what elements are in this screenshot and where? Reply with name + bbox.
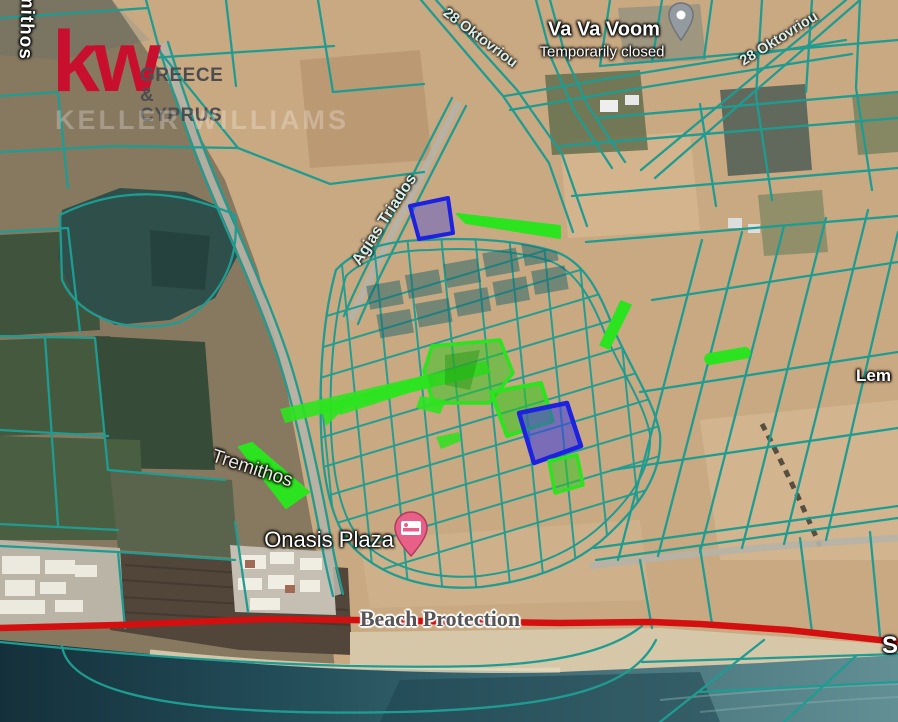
highlight-parcel-blue-top[interactable] xyxy=(410,198,453,239)
street-label-coast-partial: S xyxy=(882,632,898,660)
street-label-tremithos-edge: mithos xyxy=(14,0,38,60)
overlay-label-beach-protection: Beach Protection xyxy=(360,606,520,632)
poi-label-onasis-plaza[interactable]: Onasis Plaza xyxy=(264,527,394,553)
kw-region-line1: GREECE & xyxy=(140,65,223,106)
map-viewport[interactable]: kw GREECE & CYPRUS KELLER WILLIAMS mitho… xyxy=(0,0,898,722)
kw-watermark: KELLER WILLIAMS xyxy=(55,105,349,136)
highlight-parcel-green-small[interactable] xyxy=(549,455,583,493)
street-label-lemesou-partial: Lem xyxy=(856,366,891,386)
poi-status-vavavoom: Temporarily closed xyxy=(539,44,664,61)
poi-label-vavavoom[interactable]: Va Va Voom xyxy=(548,19,660,42)
